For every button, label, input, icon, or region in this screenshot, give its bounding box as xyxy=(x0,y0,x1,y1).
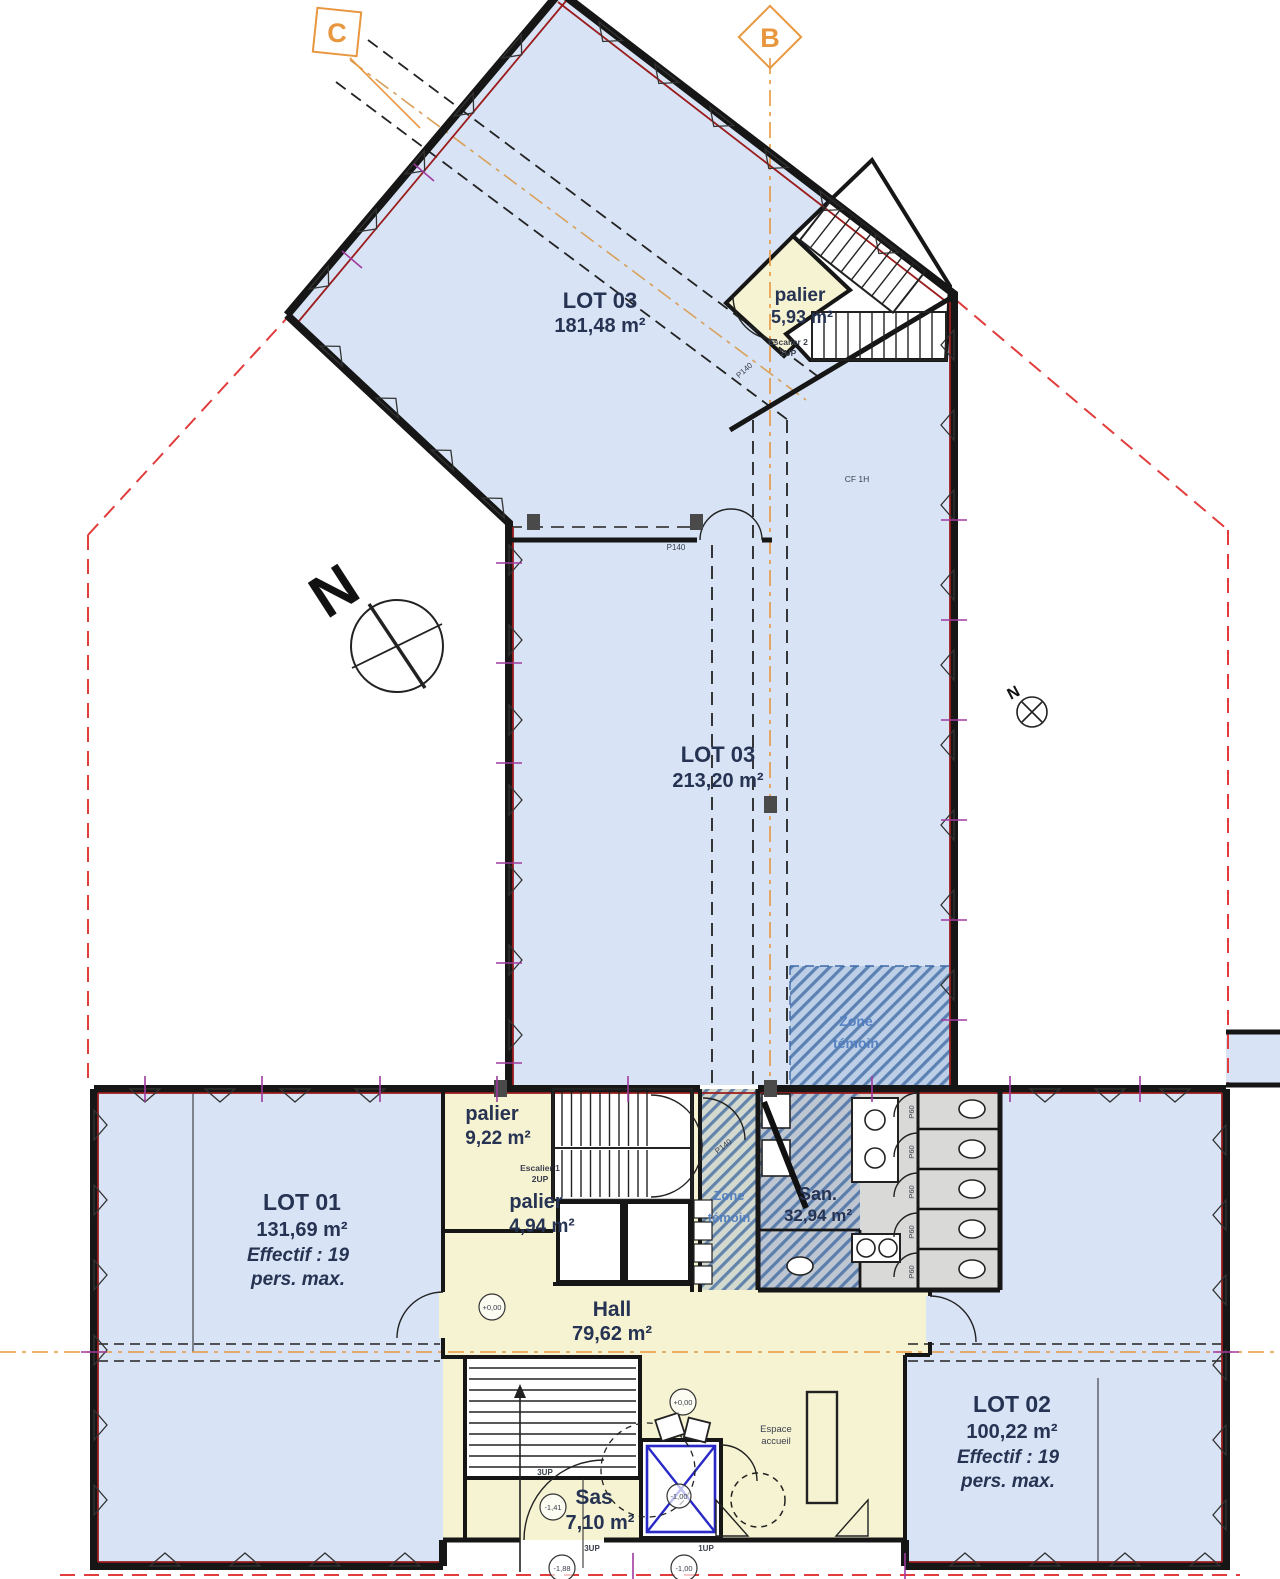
escalier1-rise: 2UP xyxy=(532,1174,549,1184)
zone-temoin-upper-line1: Zone xyxy=(839,1013,873,1029)
section-b-label: B xyxy=(760,23,780,53)
north-compass: N xyxy=(297,551,443,692)
entry-stair-rise-tag: 3UP xyxy=(584,1544,600,1553)
right-annex-floor xyxy=(1226,1032,1280,1085)
lot02-occupancy2: pers. max. xyxy=(960,1471,1055,1492)
door-p60-tag: P60 xyxy=(907,1105,916,1118)
escalier1-name: Escalier 1 xyxy=(520,1163,560,1173)
lift-shafts xyxy=(558,1200,712,1284)
door-p140-tag: P140 xyxy=(667,543,686,552)
lot01-area: 131,69 m² xyxy=(256,1219,348,1241)
floor-plan-drawing: C B N N +0,00 +0,00 -1,41 -1,00 -1,88 -1… xyxy=(0,0,1280,1579)
espace-accueil-line1: Espace xyxy=(760,1424,792,1435)
hall-name: Hall xyxy=(593,1298,632,1321)
zone-temoin-lower-line1: Zone xyxy=(713,1188,744,1203)
lot01-occupancy1: Effectif : 19 xyxy=(247,1245,350,1266)
san-area: 32,94 m² xyxy=(784,1206,852,1225)
zone-temoin-lower-line2: témoin xyxy=(708,1210,751,1225)
level-sas: -1,41 xyxy=(544,1503,561,1512)
floor-plan-page: C B N N +0,00 +0,00 -1,41 -1,00 -1,88 -1… xyxy=(0,0,1280,1579)
espace-accueil-line2: accueil xyxy=(761,1436,791,1447)
section-c-label: C xyxy=(327,18,347,48)
palier4-name: palier xyxy=(509,1191,563,1213)
door-p60-tag: P60 xyxy=(907,1145,916,1158)
lot03-lower-area: 213,20 m² xyxy=(672,770,764,792)
lot01-name: LOT 01 xyxy=(263,1189,341,1215)
zone-temoin-upper-line2: témoin xyxy=(833,1035,879,1051)
palier9-name: palier xyxy=(465,1103,519,1125)
escalier2-rise: 2UP xyxy=(780,348,797,358)
door-p60-tag: P60 xyxy=(907,1225,916,1238)
escalier1-well xyxy=(553,1089,692,1200)
palier9-area: 9,22 m² xyxy=(465,1128,530,1149)
lot02-occupancy1: Effectif : 19 xyxy=(957,1447,1060,1468)
sas-name: Sas xyxy=(575,1486,612,1509)
san-name: San. xyxy=(799,1184,837,1204)
level-lift: -1,00 xyxy=(670,1492,687,1501)
lot01-occupancy2: pers. max. xyxy=(250,1269,345,1290)
entry-stair-well xyxy=(465,1357,640,1478)
palier4-area: 4,94 m² xyxy=(509,1216,574,1237)
lot03-upper-name: LOT 03 xyxy=(563,288,638,313)
level-accueil: +0,00 xyxy=(674,1398,693,1407)
level-hall: +0,00 xyxy=(483,1303,502,1312)
sas-area: 7,10 m² xyxy=(566,1512,635,1534)
level-outside-right: -1,00 xyxy=(675,1564,692,1573)
lot03-lower-name: LOT 03 xyxy=(681,742,756,767)
lot03-upper-area: 181,48 m² xyxy=(554,315,646,337)
north-letter-small: N xyxy=(1005,683,1023,703)
level-outside-left: -1,88 xyxy=(553,1564,570,1573)
hall-area: 79,62 m² xyxy=(572,1323,652,1345)
entry-stair-rise-tag: 3UP xyxy=(537,1468,553,1477)
fire-rating-label: CF 1H xyxy=(845,474,870,484)
palier-upper-name: palier xyxy=(775,285,826,306)
palier-upper-area: 5,93 m² xyxy=(771,307,833,327)
entry-step-rise-tag: 1UP xyxy=(698,1544,714,1553)
door-p60-tag: P60 xyxy=(907,1265,916,1278)
north-compass-small: N xyxy=(1005,683,1047,727)
door-p60-tag: P60 xyxy=(907,1185,916,1198)
escalier2-name: Escalier 2 xyxy=(768,337,808,347)
lot02-area: 100,22 m² xyxy=(966,1421,1058,1443)
lot02-name: LOT 02 xyxy=(973,1391,1051,1417)
